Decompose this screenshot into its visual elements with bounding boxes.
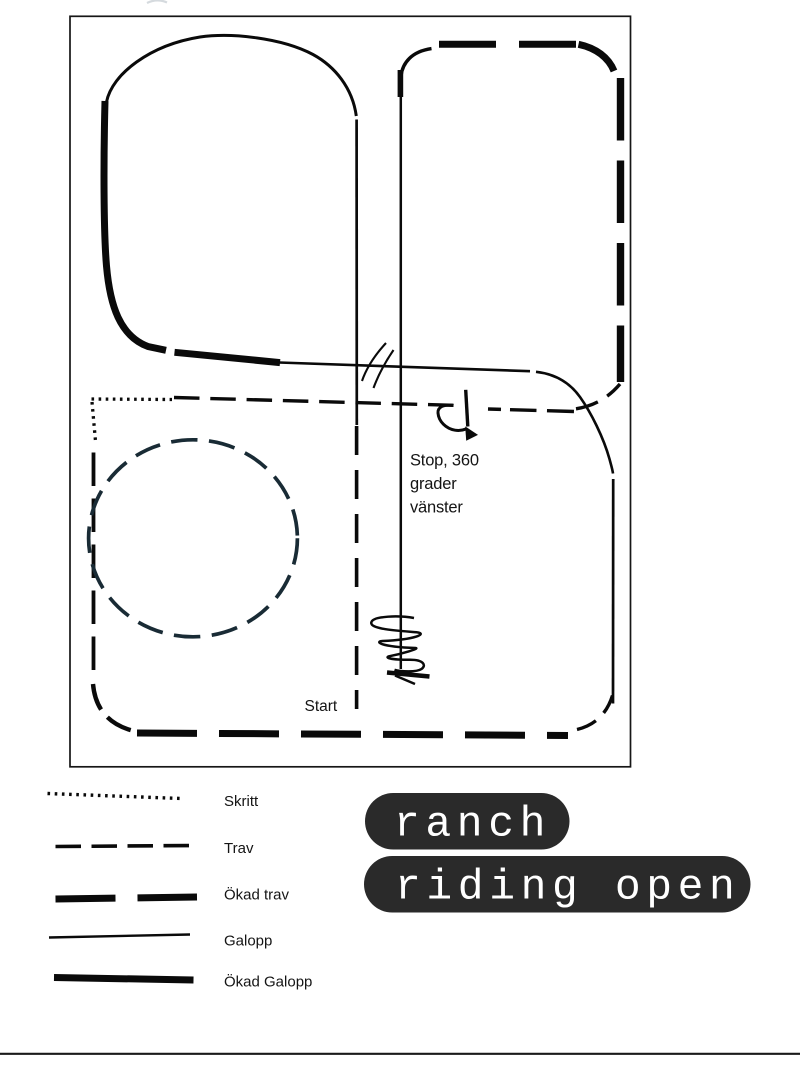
svg-text:Stop, 360: Stop, 360 — [410, 452, 479, 470]
svg-text:Ökad Galopp: Ökad Galopp — [224, 973, 312, 991]
svg-text:Skritt: Skritt — [224, 793, 259, 810]
svg-text:grader: grader — [410, 475, 457, 493]
svg-text:vänster: vänster — [410, 499, 463, 517]
svg-text:ranch: ranch — [394, 800, 551, 849]
svg-text:Galopp: Galopp — [224, 933, 272, 950]
svg-text:Start: Start — [305, 698, 338, 715]
svg-text:Ökad trav: Ökad trav — [224, 886, 290, 904]
svg-text:riding open: riding open — [395, 863, 740, 912]
svg-text:Trav: Trav — [224, 840, 254, 857]
